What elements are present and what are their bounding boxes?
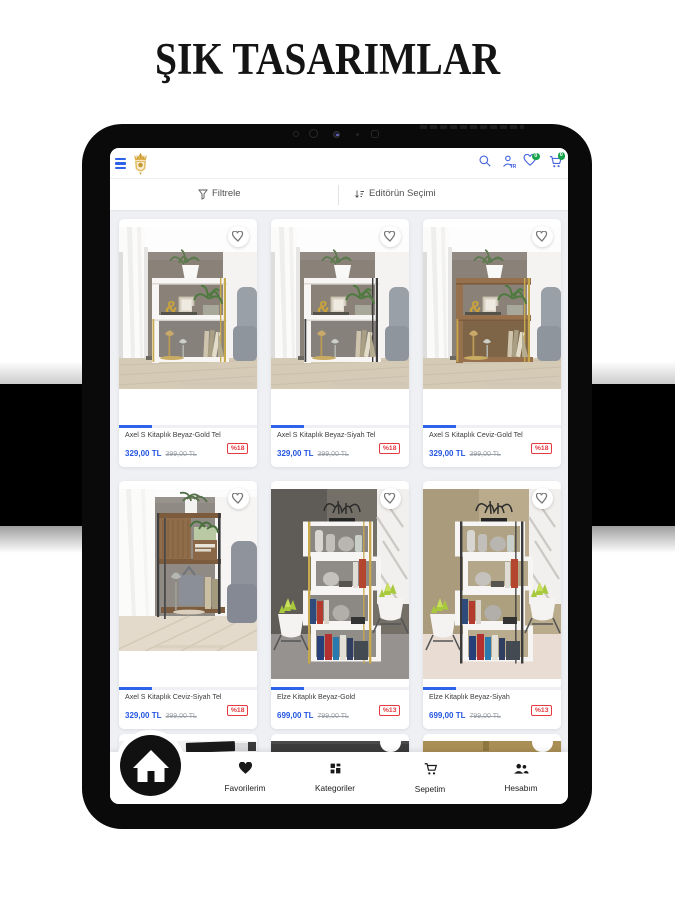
svg-text:TR: TR <box>510 164 516 169</box>
